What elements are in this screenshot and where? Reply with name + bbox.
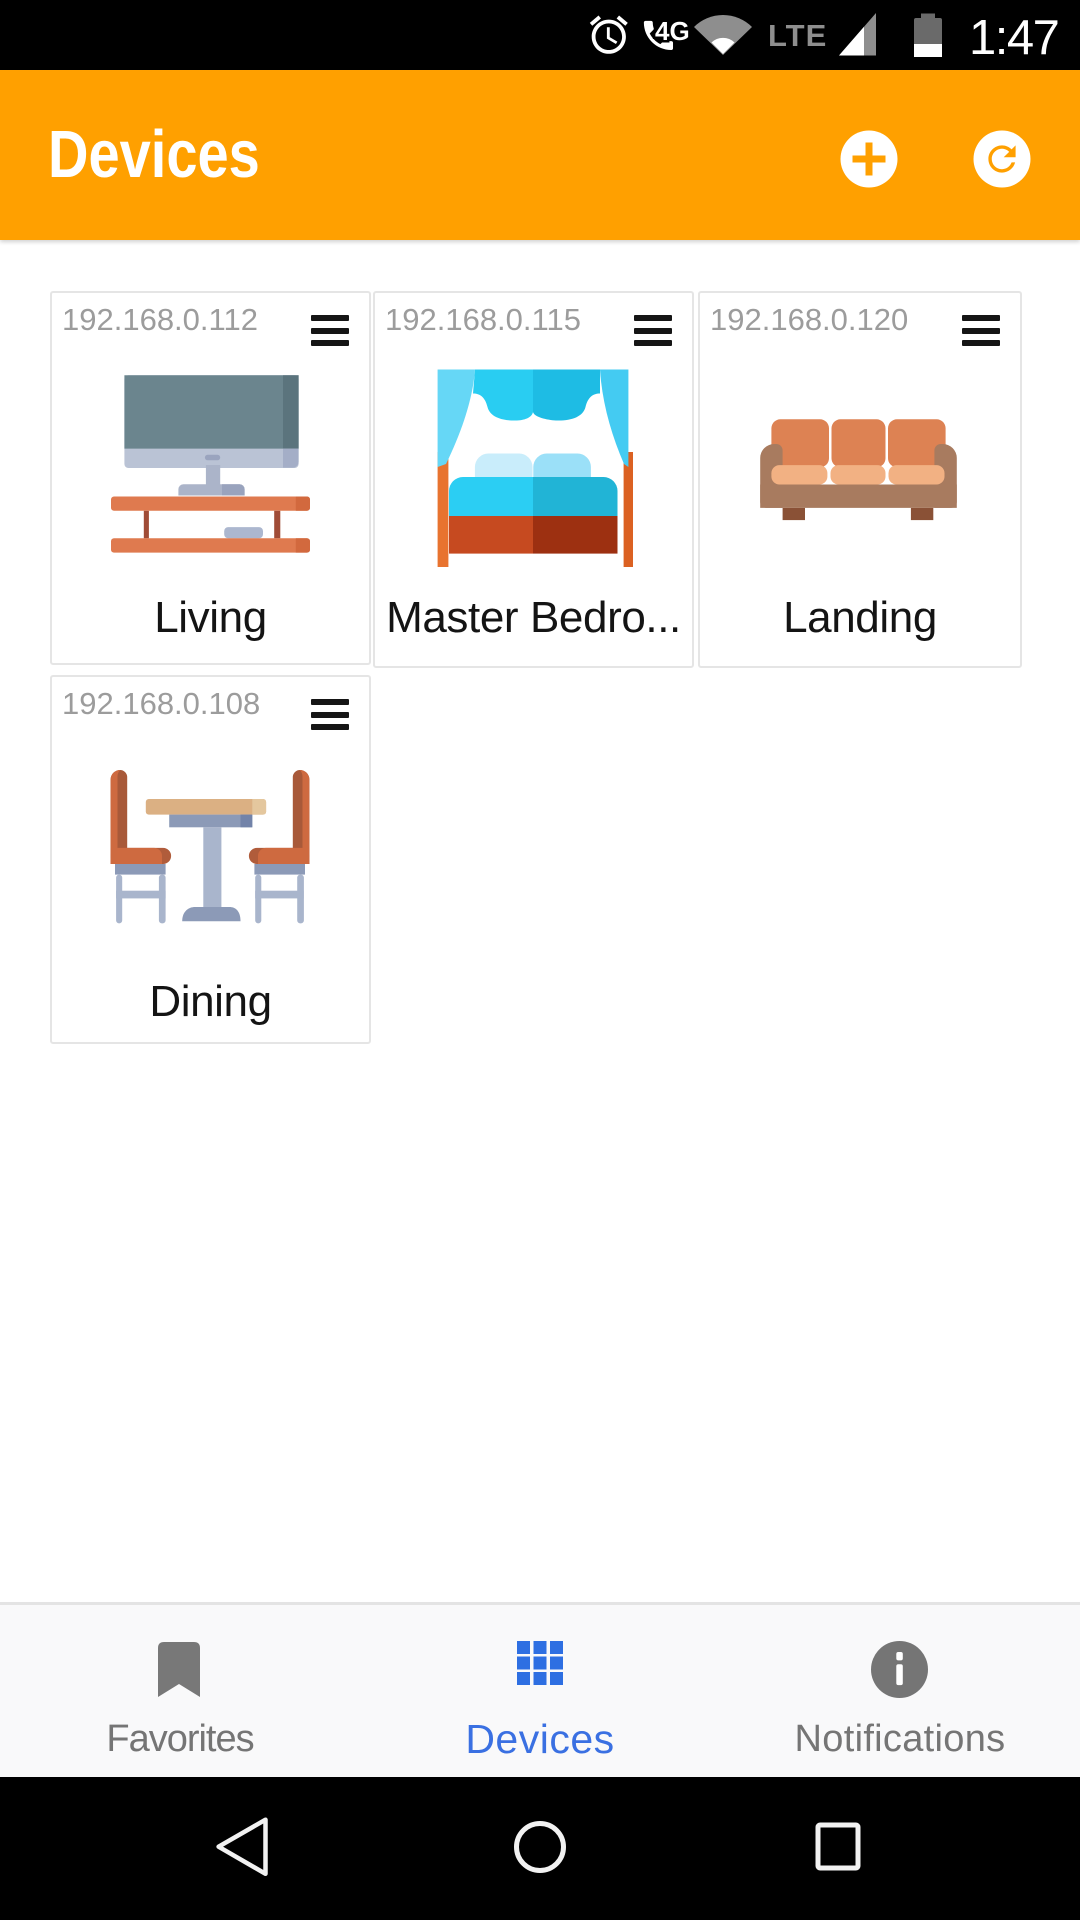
svg-text:LTE: LTE — [768, 18, 827, 53]
svg-text:4G: 4G — [655, 16, 690, 46]
svg-text:1:47: 1:47 — [969, 11, 1058, 65]
